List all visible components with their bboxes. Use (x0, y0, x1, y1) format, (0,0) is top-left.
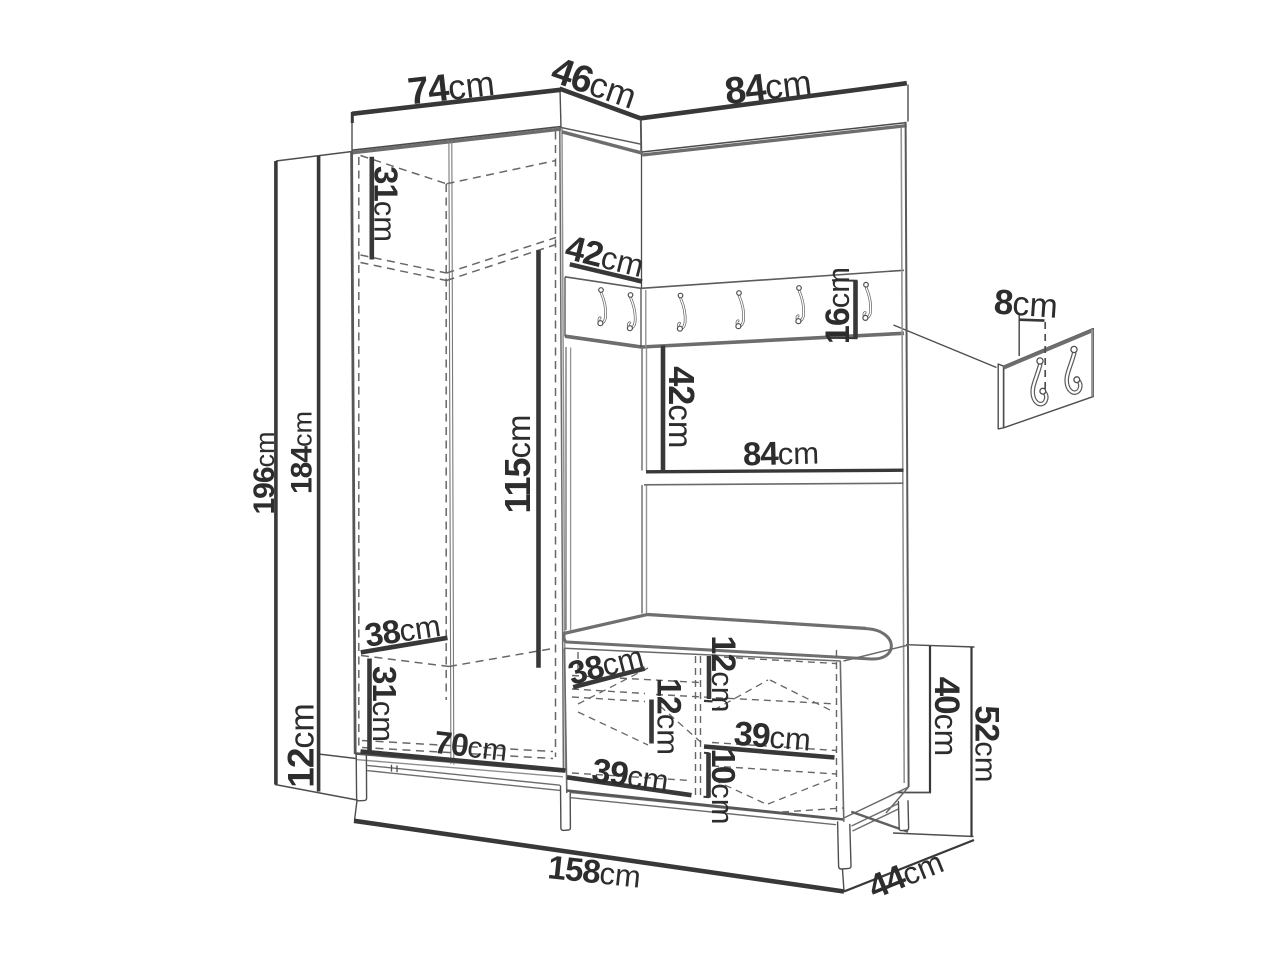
svg-text:39cm: 39cm (732, 715, 812, 759)
svg-text:40cm: 40cm (927, 677, 966, 757)
svg-text:12cm: 12cm (280, 703, 321, 787)
svg-text:115cm: 115cm (497, 414, 538, 513)
svg-text:16cm: 16cm (819, 267, 857, 344)
svg-text:8cm: 8cm (993, 282, 1059, 325)
svg-text:10cm: 10cm (705, 748, 742, 824)
svg-text:31cm: 31cm (368, 166, 405, 242)
svg-text:52cm: 52cm (967, 705, 1005, 782)
svg-text:84cm: 84cm (743, 433, 820, 472)
svg-text:184cm: 184cm (285, 411, 318, 494)
svg-text:42cm: 42cm (661, 366, 702, 448)
svg-text:12cm: 12cm (704, 635, 742, 712)
svg-text:31cm: 31cm (366, 666, 403, 742)
svg-text:12cm: 12cm (649, 678, 687, 755)
svg-text:196cm: 196cm (248, 431, 281, 514)
